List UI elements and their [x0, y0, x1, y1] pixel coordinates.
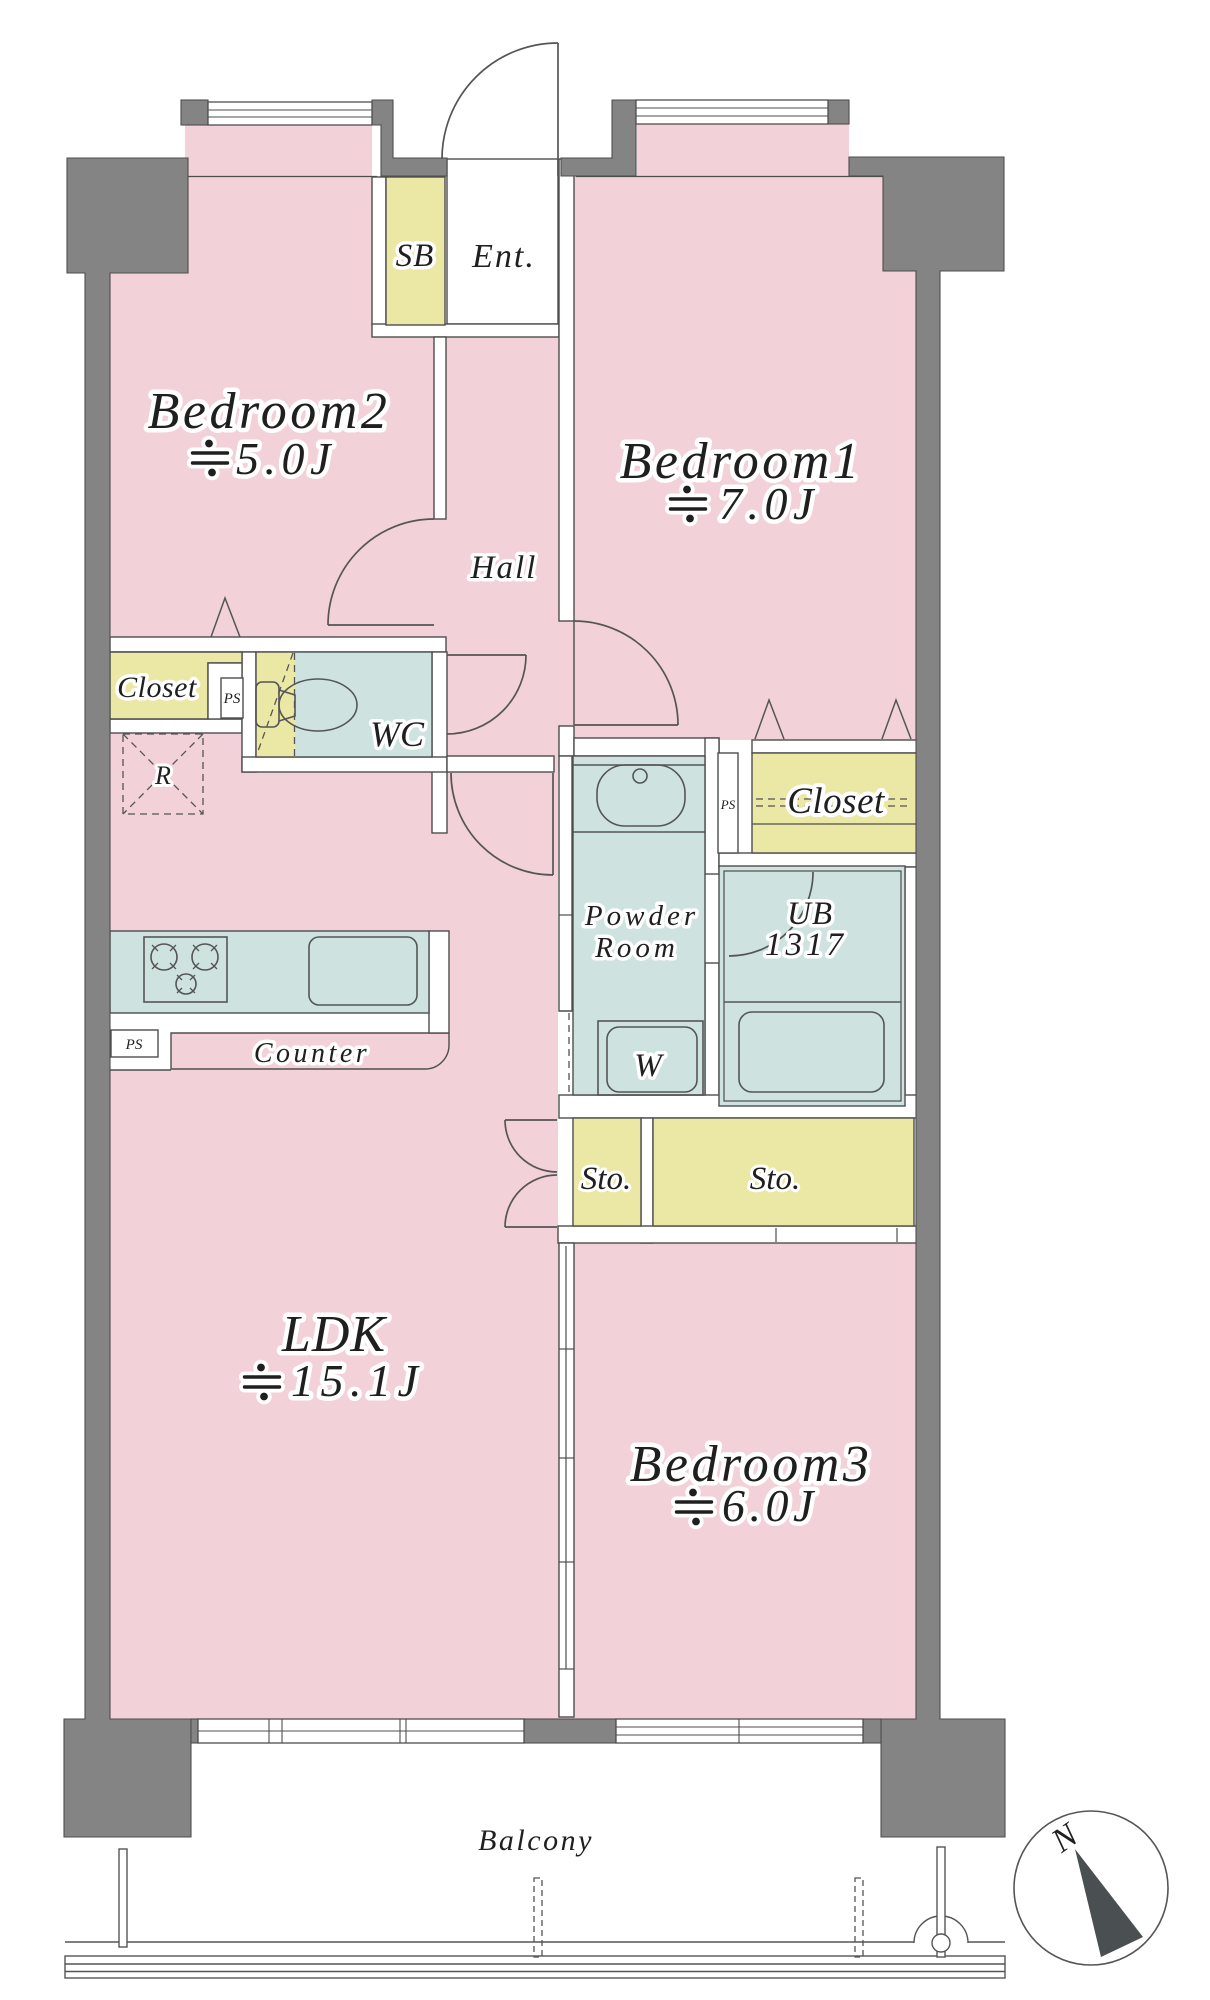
svg-text:Powder: Powder	[584, 900, 699, 932]
svg-text:Sto.: Sto.	[750, 1161, 800, 1197]
svg-text:PS: PS	[223, 691, 241, 707]
svg-text:Counter: Counter	[254, 1038, 370, 1069]
svg-text:W: W	[634, 1048, 664, 1084]
svg-text:Closet: Closet	[787, 781, 886, 822]
svg-text:Bedroom2: Bedroom2	[148, 383, 391, 440]
svg-text:R: R	[154, 761, 171, 790]
svg-text:1317: 1317	[765, 927, 847, 963]
svg-text:Room: Room	[594, 932, 679, 964]
svg-text:Ent.: Ent.	[471, 238, 536, 275]
svg-text:Hall: Hall	[470, 550, 538, 586]
svg-text:5.0J: 5.0J	[236, 433, 336, 484]
svg-text:7.0J: 7.0J	[719, 478, 819, 529]
svg-text:PS: PS	[125, 1037, 143, 1053]
svg-text:Sto.: Sto.	[581, 1161, 631, 1197]
svg-text:WC: WC	[370, 714, 425, 754]
svg-text:Closet: Closet	[117, 671, 197, 704]
svg-text:Balcony: Balcony	[478, 1824, 594, 1857]
svg-text:15.1J: 15.1J	[291, 1355, 424, 1406]
svg-text:6.0J: 6.0J	[722, 1480, 818, 1531]
svg-text:PS: PS	[720, 797, 736, 812]
svg-text:SB: SB	[396, 238, 435, 274]
